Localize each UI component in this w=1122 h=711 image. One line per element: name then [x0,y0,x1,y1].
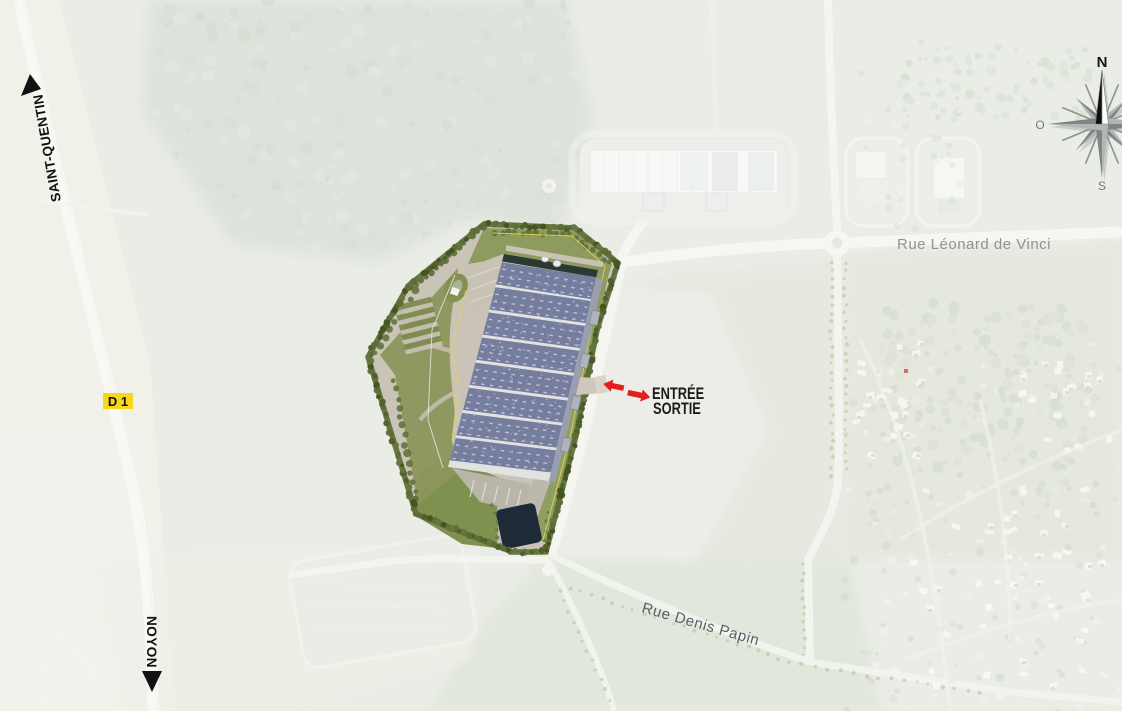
svg-text:Rue Léonard de Vinci: Rue Léonard de Vinci [897,236,1051,253]
svg-text:NOYON: NOYON [144,616,159,668]
svg-text:O: O [1035,118,1044,132]
svg-text:S: S [1098,179,1106,193]
svg-text:D 1: D 1 [108,394,128,409]
svg-text:N: N [1097,54,1108,71]
svg-text:SORTIE: SORTIE [653,401,701,419]
